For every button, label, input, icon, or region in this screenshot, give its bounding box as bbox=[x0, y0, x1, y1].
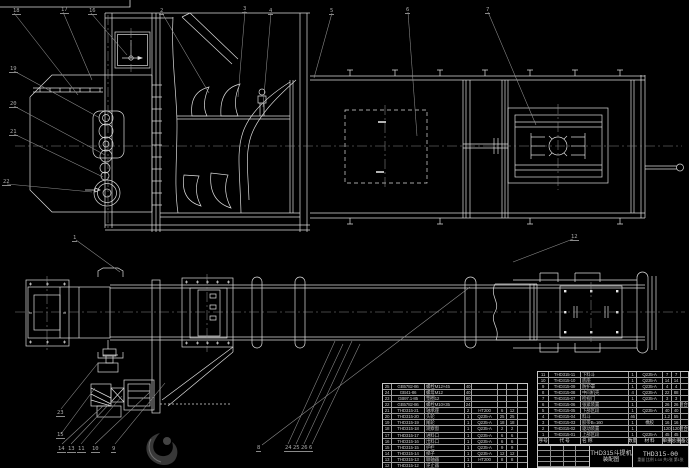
bom-cell: 26 bbox=[672, 402, 681, 407]
bom-cell bbox=[472, 463, 498, 468]
bom-cell: HT200 bbox=[472, 408, 498, 413]
bom-cell bbox=[681, 384, 689, 389]
bom-cell bbox=[518, 445, 528, 450]
bom-cell: 1 bbox=[629, 432, 637, 437]
bom-cell: Q235-A bbox=[472, 451, 498, 456]
bom-cell: Q235-A bbox=[637, 378, 663, 383]
bom-cell: 45 bbox=[672, 432, 681, 437]
bom-cell: 1 bbox=[629, 396, 637, 401]
callout-label: 10 bbox=[91, 446, 100, 453]
bom-cell: THD315-10 bbox=[549, 378, 581, 383]
bom-cell: THD315-06 bbox=[549, 402, 581, 407]
bom-cell: GB41-86 bbox=[392, 390, 425, 395]
bom-cell bbox=[498, 463, 507, 468]
bom-cell: 10 bbox=[538, 378, 549, 383]
bom-cell: THD315-05 bbox=[549, 408, 581, 413]
bom-cell: THD315-02 bbox=[549, 426, 581, 431]
bom-cell bbox=[518, 390, 528, 395]
bom-cell: 上部区段 bbox=[581, 432, 629, 437]
bom-cell: 备注 bbox=[681, 438, 689, 445]
bom-cell: 下部区段 bbox=[581, 408, 629, 413]
bom-cell: 25 bbox=[383, 384, 392, 389]
bom-cell: 25 bbox=[507, 414, 518, 419]
bom-cell: 1 bbox=[629, 384, 637, 389]
bom-cell: 头轮 bbox=[425, 414, 465, 419]
bom-cell: 材 料 bbox=[637, 438, 663, 445]
signature-grid bbox=[538, 446, 590, 467]
bom-cell: 12 bbox=[383, 463, 392, 468]
bom-cell bbox=[507, 384, 518, 389]
bom-cell: 15 bbox=[383, 445, 392, 450]
callout-label: 4 bbox=[268, 8, 273, 15]
bom-cell bbox=[518, 433, 528, 438]
bom-cell bbox=[681, 390, 689, 395]
bom-cell: 2 bbox=[465, 408, 472, 413]
bom-cell: Q235-A bbox=[637, 384, 663, 389]
bom-cell: 1 bbox=[465, 439, 472, 444]
bom-cell: 6 bbox=[498, 433, 507, 438]
bom-cell: Q235-A bbox=[472, 420, 498, 425]
bom-cell: 橡胶 bbox=[637, 420, 663, 425]
bom-cell: 进料口 bbox=[425, 433, 465, 438]
bom-cell bbox=[498, 396, 507, 401]
bom-cell bbox=[518, 451, 528, 456]
bom-cell bbox=[507, 463, 518, 468]
bom-cell bbox=[637, 426, 663, 431]
bom-cell: Q235-A bbox=[637, 408, 663, 413]
bom-cell: THD315-14 bbox=[392, 451, 425, 456]
bom-cell: 1 bbox=[465, 445, 472, 450]
bom-cell: Q235-A bbox=[637, 432, 663, 437]
number-cell: THD315-00 重量 比例 1:10 共1张 第1张 bbox=[633, 446, 688, 467]
bom-cell: 1 bbox=[465, 451, 472, 456]
bom-cell: Q235-A bbox=[472, 414, 498, 419]
bom-cell bbox=[681, 432, 689, 437]
callout-label: 15 bbox=[56, 432, 65, 439]
bom-cell: 下料斗 bbox=[581, 372, 629, 377]
callout-label: 14 bbox=[57, 446, 66, 453]
bom-cell: 1.2 bbox=[663, 414, 672, 419]
bom-cell: 1 bbox=[465, 433, 472, 438]
bom-cell: 螺栓M12×45 bbox=[425, 384, 465, 389]
signature-cell bbox=[576, 462, 589, 467]
bom-cell: 总重 bbox=[672, 438, 681, 445]
bom-cell: Q235-A bbox=[472, 426, 498, 431]
bom-cell: 11 bbox=[538, 372, 549, 377]
bom-cell: 组合件 bbox=[681, 426, 689, 431]
bom-cell: 23 bbox=[383, 396, 392, 401]
bom-cell: GB97.1-85 bbox=[392, 396, 425, 401]
bom-cell bbox=[681, 414, 689, 419]
bom-cell: 4 bbox=[663, 384, 672, 389]
bom-cell: 80 bbox=[465, 396, 472, 401]
cad-sheet: 1817162345671920212211223151413111098242… bbox=[0, 0, 689, 468]
bom-cell: 7 bbox=[538, 396, 549, 401]
bom-cell: 1 bbox=[465, 426, 472, 431]
callout-label: 2 bbox=[159, 8, 164, 15]
bom-cell: 1 bbox=[629, 426, 637, 431]
bom-cell: THD315-13 bbox=[392, 457, 425, 462]
elevation-view bbox=[30, 13, 684, 232]
callout-label: 6 bbox=[405, 7, 410, 14]
bom-cell bbox=[518, 402, 528, 407]
bom-cell: HT200 bbox=[472, 457, 498, 462]
bom-cell: 1 bbox=[465, 414, 472, 419]
bom-cell: 2 bbox=[538, 426, 549, 431]
bom-cell: 1 bbox=[538, 432, 549, 437]
bom-cell: 55 bbox=[672, 414, 681, 419]
bom-cell bbox=[637, 414, 663, 419]
bom-cell bbox=[507, 402, 518, 407]
bom-cell: 检视门 bbox=[581, 396, 629, 401]
bom-cell bbox=[498, 384, 507, 389]
bom-cell: Q235-A bbox=[472, 445, 498, 450]
callout-label: 21 bbox=[9, 129, 18, 136]
bom-cell bbox=[472, 402, 498, 407]
bom-cell: 88 bbox=[672, 390, 681, 395]
bom-cell bbox=[681, 420, 689, 425]
callout-label: 12 bbox=[570, 234, 579, 241]
bom-cell: 螺母M12 bbox=[425, 390, 465, 395]
bom-cell: 1 bbox=[629, 420, 637, 425]
bom-cell: 螺栓M10×35 bbox=[425, 402, 465, 407]
bom-cell bbox=[507, 396, 518, 401]
bom-cell bbox=[681, 396, 689, 401]
bom-cell: 9 bbox=[538, 384, 549, 389]
drawing-title: THD315斗提机 bbox=[590, 450, 632, 457]
callout-label: 3 bbox=[242, 6, 247, 13]
bom-cell: THD315-18 bbox=[392, 426, 425, 431]
bom-cell: 14 bbox=[672, 378, 681, 383]
callout-label: 11 bbox=[77, 446, 86, 453]
bom-cell: 12 bbox=[507, 408, 518, 413]
bom-cell bbox=[518, 414, 528, 419]
bom-cell: 垫圈12 bbox=[425, 396, 465, 401]
bom-cell: 14 bbox=[663, 378, 672, 383]
callout-label: 22 bbox=[2, 179, 11, 186]
bom-cell: 1 bbox=[629, 408, 637, 413]
bom-cell bbox=[518, 384, 528, 389]
signature-cell bbox=[564, 462, 577, 467]
bom-cell: 数量 bbox=[629, 438, 637, 445]
bom-row: 12THD315-12逆止器1 bbox=[383, 463, 527, 468]
bom-cell: 3 bbox=[538, 420, 549, 425]
bom-right-rows: 11THD315-11下料斗1Q235-A7710THD315-10底座1Q23… bbox=[538, 372, 688, 438]
callout-label: 18 bbox=[12, 8, 21, 15]
bom-cell: Q235-A bbox=[637, 372, 663, 377]
bom-cell: 逆止器 bbox=[425, 463, 465, 468]
bom-cell bbox=[472, 390, 498, 395]
bom-cell: 8 bbox=[507, 457, 518, 462]
callout-label: 1 bbox=[72, 235, 77, 242]
bom-cell: THD315-16 bbox=[392, 439, 425, 444]
bom-cell: 40 bbox=[663, 408, 672, 413]
bom-cell: 6 bbox=[538, 402, 549, 407]
bom-cell: 名 称 bbox=[581, 438, 629, 445]
bom-cell: 6 bbox=[498, 408, 507, 413]
bom-cell: 料斗 bbox=[581, 414, 629, 419]
bom-cell: 18 bbox=[383, 426, 392, 431]
bom-cell: 17 bbox=[383, 433, 392, 438]
bom-cell: 18 bbox=[507, 420, 518, 425]
sheet-note: 重量 比例 1:10 共1张 第1张 bbox=[633, 458, 688, 463]
bom-cell: 120 bbox=[672, 426, 681, 431]
bom-cell: 19 bbox=[383, 420, 392, 425]
bom-cell bbox=[681, 378, 689, 383]
bom-cell bbox=[681, 372, 689, 377]
bom-cell: 5 bbox=[538, 408, 549, 413]
bom-cell: 1 bbox=[629, 372, 637, 377]
watermark-logo bbox=[146, 433, 177, 465]
callout-label: 23 bbox=[56, 410, 65, 417]
bom-cell: 18 bbox=[498, 420, 507, 425]
bom-cell: THD315-09 bbox=[549, 384, 581, 389]
bom-cell: 3 bbox=[663, 396, 672, 401]
bom-cell: 胶带B=160 bbox=[581, 420, 629, 425]
bom-cell: 护栏 bbox=[425, 445, 465, 450]
bom-cell: THD315-17 bbox=[392, 433, 425, 438]
callout-label: 17 bbox=[60, 7, 69, 14]
bom-cell: 24 bbox=[383, 390, 392, 395]
callout-label: 6 bbox=[308, 445, 313, 452]
bom-cell: 16 bbox=[663, 420, 672, 425]
bom-cell: 轴承座 bbox=[425, 408, 465, 413]
bom-cell: 张紧装置 bbox=[581, 402, 629, 407]
bom-cell: 组合件 bbox=[681, 402, 689, 407]
bom-cell: 4 bbox=[629, 390, 637, 395]
callout-label: 7 bbox=[485, 7, 490, 14]
bom-cell: 8 bbox=[498, 457, 507, 462]
bom-cell: 16 bbox=[383, 439, 392, 444]
bom-cell: THD315-19 bbox=[392, 420, 425, 425]
bom-cell: THD315-21 bbox=[392, 408, 425, 413]
bom-cell: 尾轮 bbox=[425, 420, 465, 425]
drawing-number: THD315-00 bbox=[633, 450, 688, 458]
bom-cell: 45 bbox=[663, 432, 672, 437]
bom-cell bbox=[518, 439, 528, 444]
bom-cell bbox=[472, 384, 498, 389]
bom-cell: 20 bbox=[383, 414, 392, 419]
bom-cell: 梯子 bbox=[425, 451, 465, 456]
bom-cell bbox=[472, 396, 498, 401]
bom-cell bbox=[637, 402, 663, 407]
bom-cell: 13 bbox=[383, 457, 392, 462]
bom-cell: THD315-20 bbox=[392, 414, 425, 419]
signature-cell bbox=[538, 462, 551, 467]
bom-cell: 22 bbox=[663, 390, 672, 395]
title-block: THD315斗提机 装配图 THD315-00 重量 比例 1:10 共1张 第… bbox=[537, 445, 689, 468]
signature-cell bbox=[551, 462, 564, 467]
bom-cell: 防护罩 bbox=[581, 384, 629, 389]
bom-cell bbox=[681, 408, 689, 413]
bom-cell bbox=[518, 408, 528, 413]
bom-cell: Q235-A bbox=[637, 396, 663, 401]
bom-cell: THD315-11 bbox=[549, 372, 581, 377]
bom-cell: 单重 bbox=[663, 438, 672, 445]
bom-cell: 26 bbox=[663, 402, 672, 407]
bom-cell: 驱动装置 bbox=[581, 426, 629, 431]
bom-cell: 1 bbox=[465, 420, 472, 425]
callout-label: 20 bbox=[9, 101, 18, 108]
bom-cell: 2 bbox=[507, 426, 518, 431]
bom-cell bbox=[507, 390, 518, 395]
bom-cell bbox=[518, 420, 528, 425]
bom-cell: 12 bbox=[507, 451, 518, 456]
bom-cell: 24 bbox=[465, 402, 472, 407]
bom-cell: 40 bbox=[465, 390, 472, 395]
bom-cell: 代 号 bbox=[549, 438, 581, 445]
bom-cell: Q235-A bbox=[472, 439, 498, 444]
bom-cell: 序号 bbox=[538, 438, 549, 445]
bom-cell: THD315-08 bbox=[549, 390, 581, 395]
bom-cell bbox=[518, 463, 528, 468]
bom-cell: 8 bbox=[538, 390, 549, 395]
bom-cell: 9 bbox=[507, 445, 518, 450]
bom-cell: GB5782-86 bbox=[392, 384, 425, 389]
bom-cell: 9 bbox=[498, 445, 507, 450]
bom-cell bbox=[518, 396, 528, 401]
bom-table-left: 25GB5782-86螺栓M12×454024GB41-86螺母M124023G… bbox=[382, 383, 528, 468]
bom-cell: 1 bbox=[465, 463, 472, 468]
drawing-subtitle: 装配图 bbox=[590, 457, 632, 463]
bom-cell: 16 bbox=[672, 420, 681, 425]
bom-cell: 6 bbox=[498, 439, 507, 444]
bom-row: 序号代 号名 称数量材 料单重总重备注 bbox=[538, 438, 688, 445]
bom-cell: 出料口 bbox=[425, 439, 465, 444]
bom-cell: 中间机壳 bbox=[581, 390, 629, 395]
callout-label: 13 bbox=[67, 446, 76, 453]
bom-cell bbox=[498, 390, 507, 395]
bom-cell: 6 bbox=[507, 433, 518, 438]
bom-cell: 联轴器 bbox=[425, 457, 465, 462]
bom-cell: 3 bbox=[672, 396, 681, 401]
bom-cell: 1 bbox=[629, 402, 637, 407]
bom-cell: 1 bbox=[465, 457, 472, 462]
bom-cell: THD315-12 bbox=[392, 463, 425, 468]
bom-table-right: 11THD315-11下料斗1Q235-A7710THD315-10底座1Q23… bbox=[537, 371, 689, 445]
bom-cell: THD315-04 bbox=[549, 414, 581, 419]
bom-cell: 46 bbox=[629, 414, 637, 419]
bom-cell: 14 bbox=[383, 451, 392, 456]
bom-cell: THD315-01 bbox=[549, 432, 581, 437]
callout-label: 5 bbox=[329, 8, 334, 15]
bom-cell: GB5782-86 bbox=[392, 402, 425, 407]
bom-cell: THD315-15 bbox=[392, 445, 425, 450]
bom-header-row: 序号代 号名 称数量材 料单重总重备注 bbox=[538, 438, 688, 445]
bom-cell: 40 bbox=[672, 408, 681, 413]
bom-cell: 底座 bbox=[581, 378, 629, 383]
bom-cell: 观察窗 bbox=[425, 426, 465, 431]
bom-cell: 22 bbox=[383, 402, 392, 407]
bom-cell: THD315-03 bbox=[549, 420, 581, 425]
callout-label: 16 bbox=[88, 8, 97, 15]
bom-cell bbox=[518, 426, 528, 431]
bom-cell: 4 bbox=[672, 384, 681, 389]
bom-cell: 21 bbox=[383, 408, 392, 413]
bom-cell bbox=[518, 457, 528, 462]
bom-cell: 1 bbox=[629, 378, 637, 383]
bom-cell: 2 bbox=[498, 426, 507, 431]
bom-cell: 40 bbox=[465, 384, 472, 389]
callout-label: 9 bbox=[111, 446, 116, 453]
bom-cell bbox=[498, 402, 507, 407]
bom-cell: 7 bbox=[672, 372, 681, 377]
bom-cell: Q235-A bbox=[472, 433, 498, 438]
bom-cell: 12 bbox=[498, 451, 507, 456]
bom-cell: Q235-A bbox=[637, 390, 663, 395]
bom-cell: 4 bbox=[538, 414, 549, 419]
bom-cell: THD315-07 bbox=[549, 396, 581, 401]
bom-cell: 25 bbox=[498, 414, 507, 419]
bom-cell: 6 bbox=[507, 439, 518, 444]
frame-corner bbox=[0, 0, 130, 7]
bom-cell: 120 bbox=[663, 426, 672, 431]
callout-label: 8 bbox=[256, 445, 261, 452]
title-cell: THD315斗提机 装配图 bbox=[590, 446, 633, 467]
callout-label: 19 bbox=[9, 66, 18, 73]
bom-cell: 7 bbox=[663, 372, 672, 377]
